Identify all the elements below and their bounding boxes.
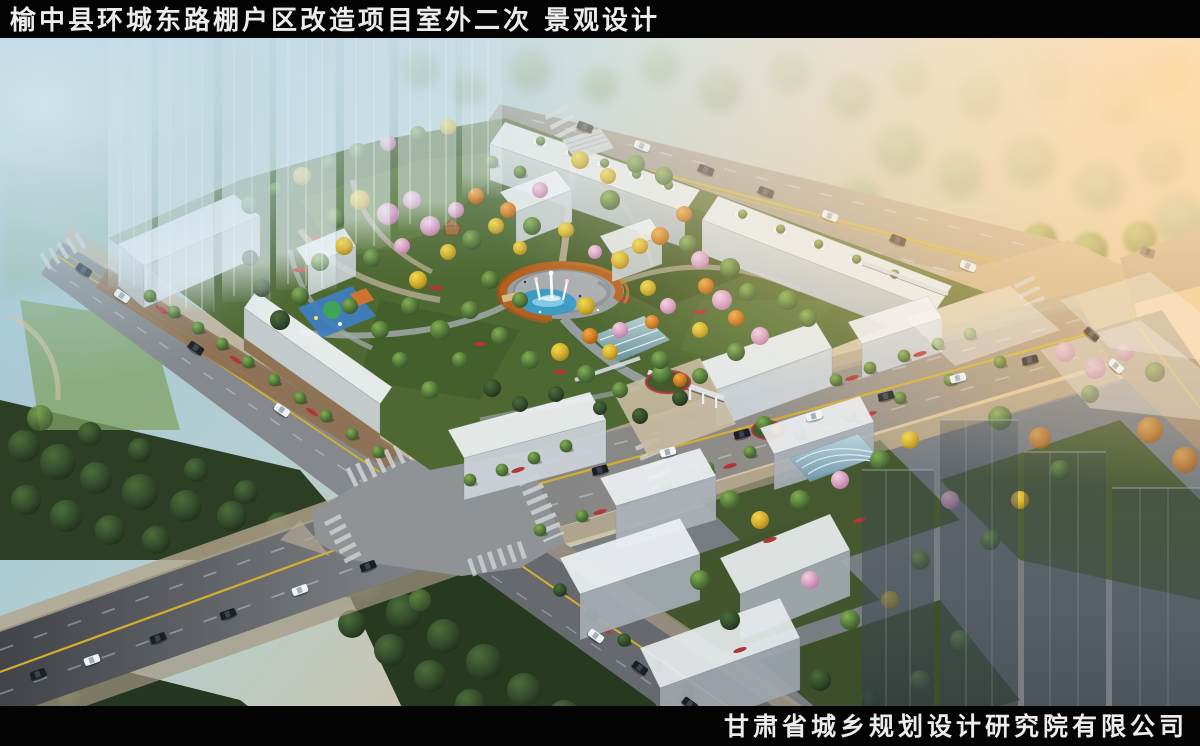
company-name: 甘肃省城乡规划设计研究院有限公司 [724,712,1188,741]
atmosphere [0,38,1200,706]
project-title: 榆中县环城东路棚户区改造项目室外二次 景观设计 [10,5,660,36]
rendering-board: 榆中县环城东路棚户区改造项目室外二次 景观设计 甘肃省城乡规划设计研究院有限公司 [0,0,1200,746]
rendering-canvas: 榆中县环城东路棚户区改造项目室外二次 景观设计 甘肃省城乡规划设计研究院有限公司 [0,0,1200,746]
rendering-scene [0,38,1200,746]
